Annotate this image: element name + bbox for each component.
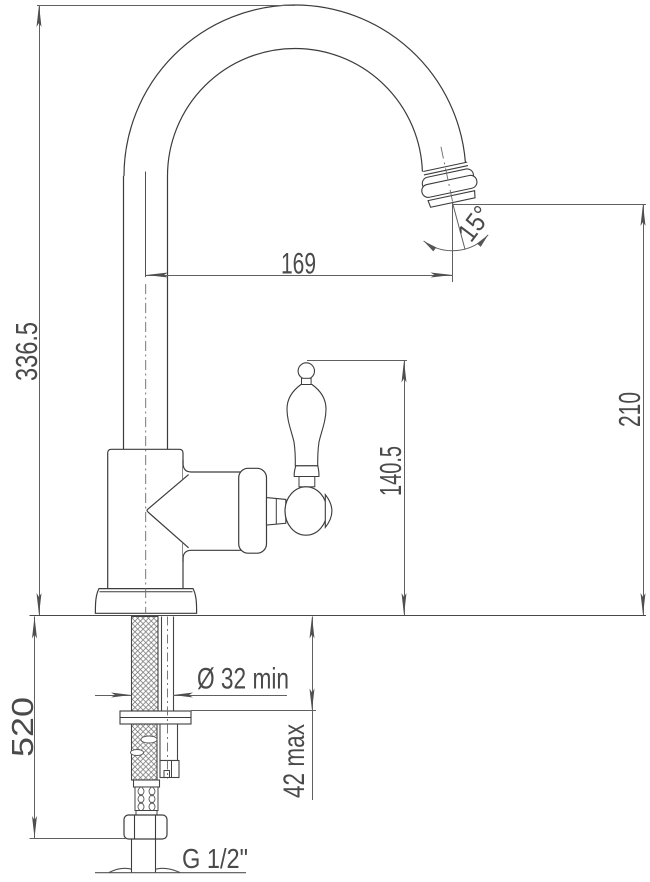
svg-text:G 1/2": G 1/2" xyxy=(182,843,248,874)
svg-text:210: 210 xyxy=(612,392,647,427)
svg-text:169: 169 xyxy=(281,248,316,281)
svg-text:42 max: 42 max xyxy=(278,724,311,798)
svg-text:15°: 15° xyxy=(452,200,498,247)
svg-text:336.5: 336.5 xyxy=(9,322,44,381)
svg-text:140.5: 140.5 xyxy=(373,446,408,496)
svg-text:520: 520 xyxy=(5,697,40,757)
svg-text:Ø 32 min: Ø 32 min xyxy=(197,663,289,696)
